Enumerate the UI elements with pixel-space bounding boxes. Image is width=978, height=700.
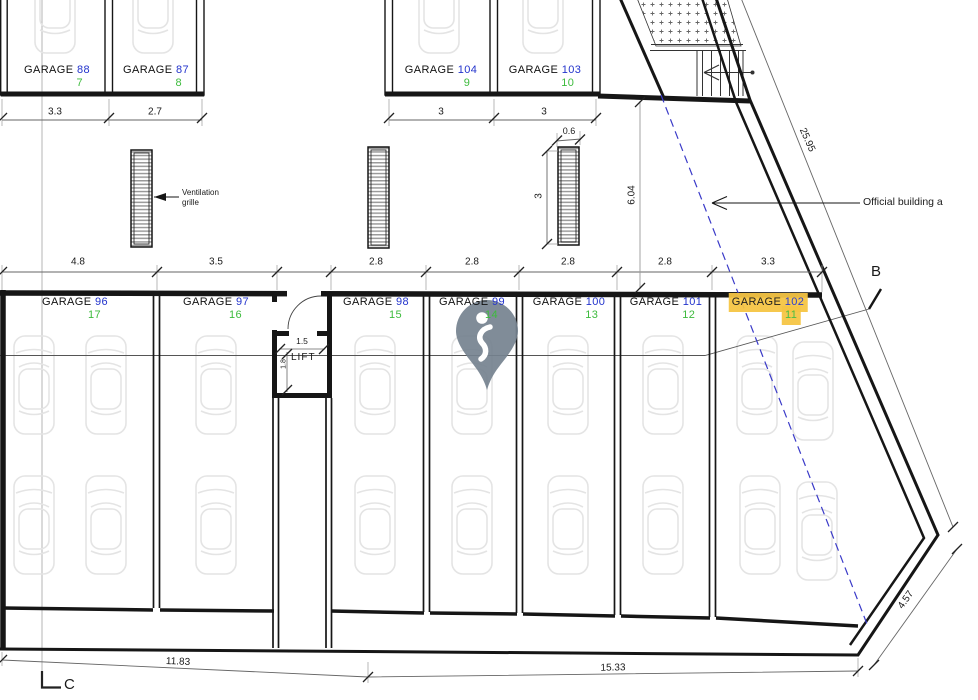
ventilation-arrow <box>154 193 179 201</box>
dim-top-mid-2: 3 <box>541 107 547 118</box>
official-building-label: Official building a <box>863 196 943 208</box>
dim-row-1: 4.8 <box>71 257 85 268</box>
dim-row-5: 2.8 <box>561 257 575 268</box>
lift-label: LIFT <box>291 352 316 363</box>
dim-grille-height: 3 <box>534 193 545 199</box>
dim-top-left-1: 3.3 <box>48 107 62 118</box>
garage-label-98[interactable]: GARAGE 9815 <box>343 296 409 322</box>
section-marker-b: B <box>871 263 881 280</box>
garage-label-103[interactable]: GARAGE 10310 <box>509 64 582 90</box>
garage-label-104[interactable]: GARAGE 1049 <box>405 64 478 90</box>
garage-label-102[interactable]: GARAGE 10211 <box>732 296 805 322</box>
official-building-arrow <box>712 197 860 210</box>
garage-label-87[interactable]: GARAGE 878 <box>123 64 189 90</box>
ventilation-grille-label: Ventilation grille <box>182 188 234 208</box>
dim-lift-width: 1.5 <box>296 336 308 346</box>
plan-linework <box>0 0 978 700</box>
property-dashed-line <box>661 95 867 624</box>
garage-label-96[interactable]: GARAGE 9617 <box>42 296 108 322</box>
garage-label-97[interactable]: GARAGE 9716 <box>183 296 249 322</box>
dim-grille-width: 0.6 <box>563 126 576 136</box>
dim-top-left-2: 2.7 <box>148 107 162 118</box>
dim-row-4: 2.8 <box>465 257 479 268</box>
top-garage-walls <box>1 0 750 101</box>
garage-label-99[interactable]: GARAGE 9914 <box>439 296 505 322</box>
dim-aisle-depth: 6.04 <box>627 185 638 204</box>
garage-label-100[interactable]: GARAGE 10013 <box>533 296 606 322</box>
section-marker-c: C <box>64 676 75 693</box>
ventilation-grille <box>558 147 579 245</box>
corner-marker-c <box>42 671 61 688</box>
dim-row-3: 2.8 <box>369 257 383 268</box>
section-line-b <box>869 289 881 309</box>
dim-lift-depth: 1.8 <box>281 359 288 369</box>
ventilation-grille <box>368 147 389 248</box>
ventilation-grille <box>131 150 152 247</box>
dim-bottom-right: 15.33 <box>600 662 625 673</box>
main-garage-walls <box>0 289 858 649</box>
dim-top-mid-1: 3 <box>438 107 444 118</box>
garage-floor-plan: 3.3 2.7 3 3 0.6 3 4.8 3.5 2.8 2.8 2.8 2.… <box>0 0 978 700</box>
dim-row-6: 2.8 <box>658 257 672 268</box>
garage-label-88[interactable]: GARAGE 887 <box>24 64 90 90</box>
garage-label-101[interactable]: GARAGE 10112 <box>630 296 703 322</box>
dim-bottom-left: 11.83 <box>166 656 191 668</box>
dim-row-7: 3.3 <box>761 257 775 268</box>
dim-row-2: 3.5 <box>209 257 223 268</box>
